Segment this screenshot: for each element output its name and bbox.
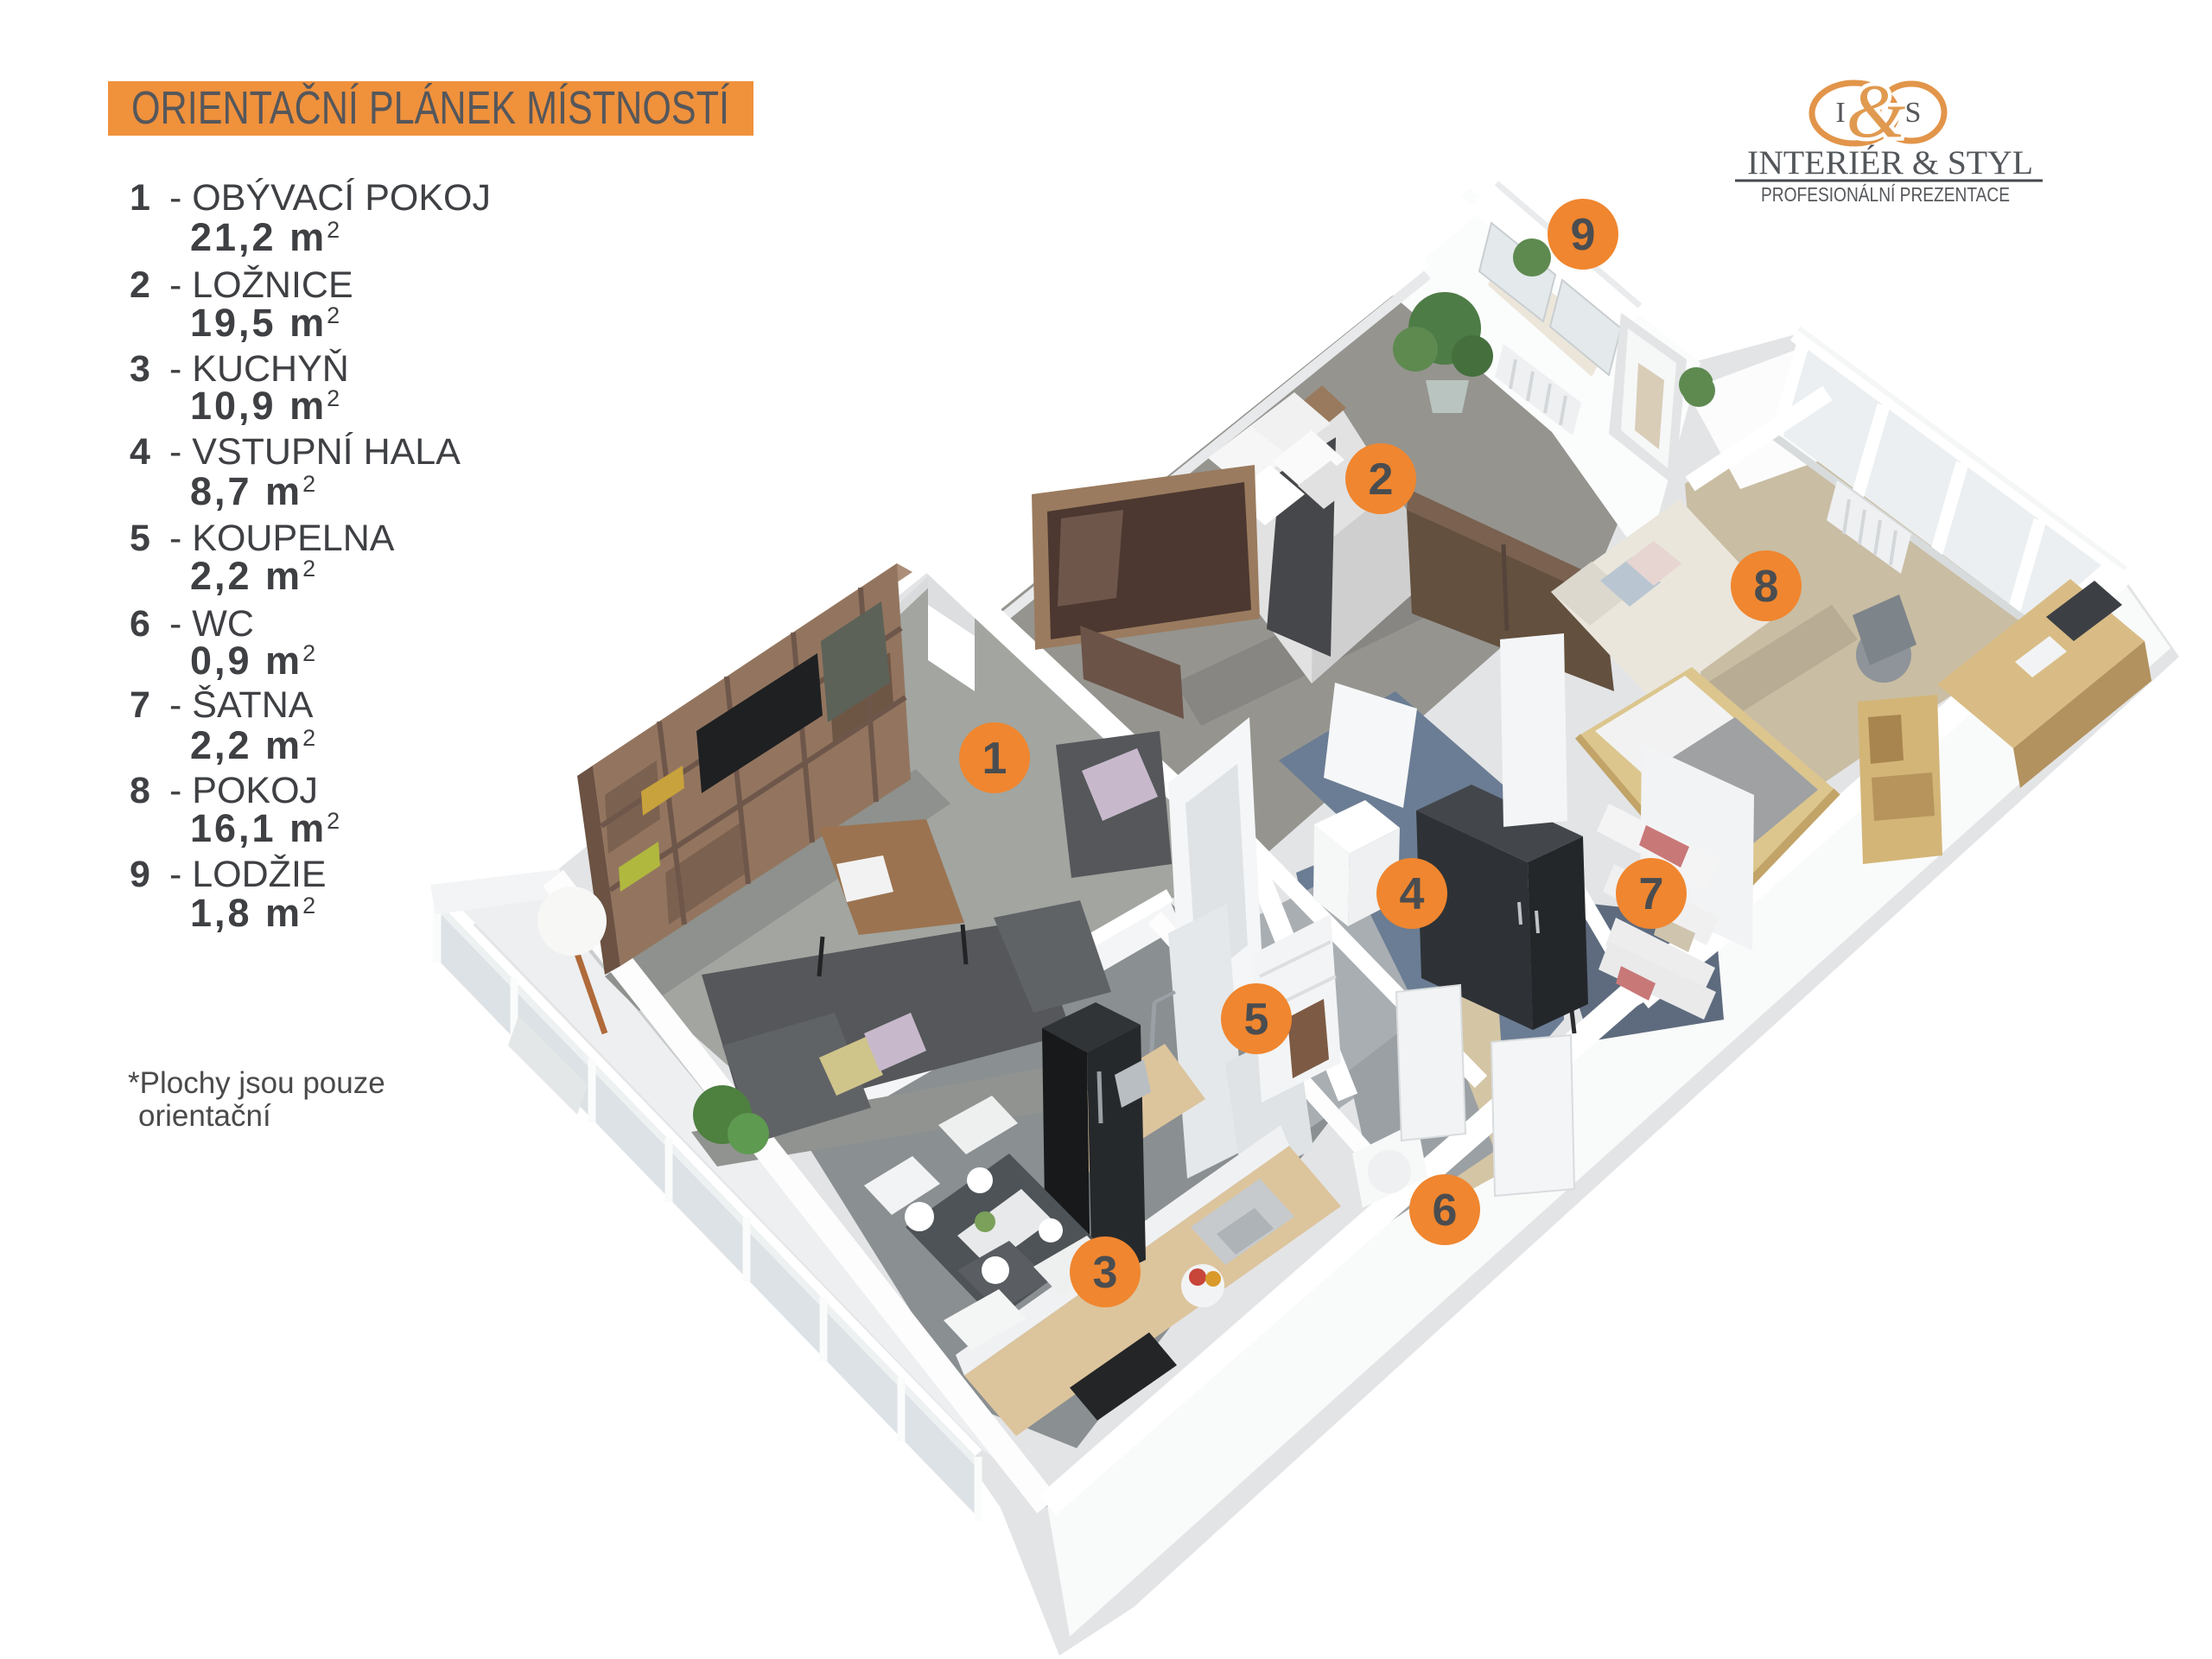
svg-text:- LODŽIE: - LODŽIE <box>169 854 327 895</box>
svg-text:21,2 m2: 21,2 m2 <box>190 215 340 259</box>
svg-text:2,2 m2: 2,2 m2 <box>190 723 315 767</box>
svg-text:*Plochy jsou pouze: *Plochy jsou pouze <box>128 1066 385 1100</box>
svg-text:2,2 m2: 2,2 m2 <box>190 554 315 598</box>
svg-text:- LOŽNICE: - LOŽNICE <box>169 264 353 306</box>
svg-text:INTERIÉR & STYL: INTERIÉR & STYL <box>1747 143 2033 181</box>
svg-text:2: 2 <box>130 264 150 306</box>
svg-text:5: 5 <box>130 518 150 559</box>
svg-text:7: 7 <box>1639 869 1664 919</box>
svg-text:PROFESIONÁLNÍ PREZENTACE: PROFESIONÁLNÍ PREZENTACE <box>1761 183 2010 206</box>
svg-text:9: 9 <box>1571 210 1596 260</box>
svg-text:9: 9 <box>130 854 150 895</box>
svg-text:1,8 m2: 1,8 m2 <box>190 891 315 935</box>
svg-text:8,7 m2: 8,7 m2 <box>190 469 315 513</box>
svg-text:16,1 m2: 16,1 m2 <box>190 806 340 850</box>
svg-text:I: I <box>1835 97 1845 129</box>
svg-text:3: 3 <box>1093 1248 1118 1298</box>
svg-text:3: 3 <box>130 348 150 390</box>
svg-text:8: 8 <box>1754 562 1779 612</box>
svg-text:- KOUPELNA: - KOUPELNA <box>169 518 395 559</box>
svg-text:orientační: orientační <box>138 1099 271 1133</box>
svg-text:7: 7 <box>130 684 150 726</box>
svg-text:2: 2 <box>1369 454 1394 505</box>
svg-text:1: 1 <box>130 177 150 219</box>
svg-text:- OBÝVACÍ POKOJ: - OBÝVACÍ POKOJ <box>169 177 491 219</box>
svg-text:4: 4 <box>1400 869 1425 919</box>
svg-text:- ŠATNA: - ŠATNA <box>169 684 314 726</box>
svg-text:S: S <box>1905 97 1922 129</box>
svg-text:4: 4 <box>130 431 150 473</box>
svg-text:8: 8 <box>130 770 150 811</box>
svg-text:6: 6 <box>1433 1185 1458 1236</box>
svg-text:19,5 m2: 19,5 m2 <box>190 301 340 345</box>
svg-text:- POKOJ: - POKOJ <box>169 770 318 811</box>
svg-text:10,9 m2: 10,9 m2 <box>190 384 340 428</box>
svg-text:0,9 m2: 0,9 m2 <box>190 639 315 683</box>
svg-text:- VSTUPNÍ HALA: - VSTUPNÍ HALA <box>169 431 461 473</box>
svg-text:ORIENTAČNÍ PLÁNEK MÍSTNOSTÍ: ORIENTAČNÍ PLÁNEK MÍSTNOSTÍ <box>131 82 729 134</box>
svg-text:1: 1 <box>982 734 1007 784</box>
svg-text:&: & <box>1847 70 1906 154</box>
svg-text:6: 6 <box>130 603 150 645</box>
svg-text:5: 5 <box>1244 995 1269 1045</box>
